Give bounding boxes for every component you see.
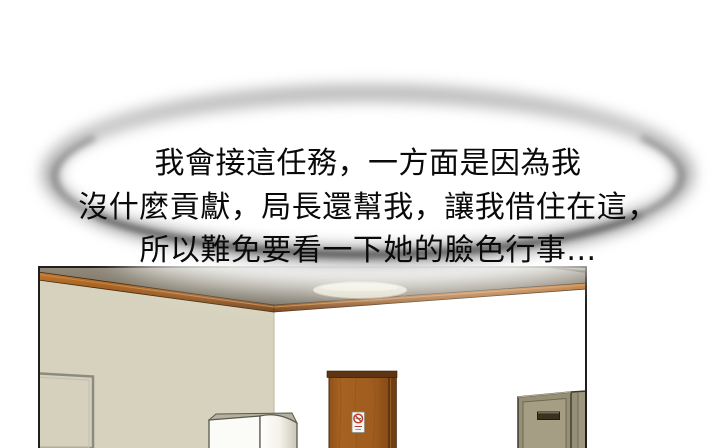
left-door (38, 373, 93, 448)
comic-page: 我會接這任務，一方面是因為我 沒什麼貢獻，局長還幫我，讓我借住在這， 所以難免要… (0, 0, 720, 448)
speech-line-3: 所以難免要看一下她的臉色行事... (40, 229, 696, 273)
storage-cabinet (518, 391, 587, 448)
comic-panel (38, 266, 587, 448)
storage-cabinet-face (523, 399, 566, 448)
speech-text: 我會接這任務，一方面是因為我 沒什麼貢獻，局長還幫我，讓我借住在這， 所以難免要… (40, 142, 696, 273)
room-door (327, 371, 397, 448)
left-door-panel (38, 373, 93, 448)
white-cabinet-cylinder (260, 415, 297, 448)
door-lintel (327, 371, 397, 378)
speech-line-2: 沒什麼貢獻，局長還幫我，讓我借住在這， (40, 186, 696, 230)
no-smoking-sign (352, 412, 365, 433)
white-cabinet-front (209, 416, 260, 448)
white-cabinet (209, 413, 297, 448)
speech-line-1: 我會接這任務，一方面是因為我 (40, 142, 696, 186)
